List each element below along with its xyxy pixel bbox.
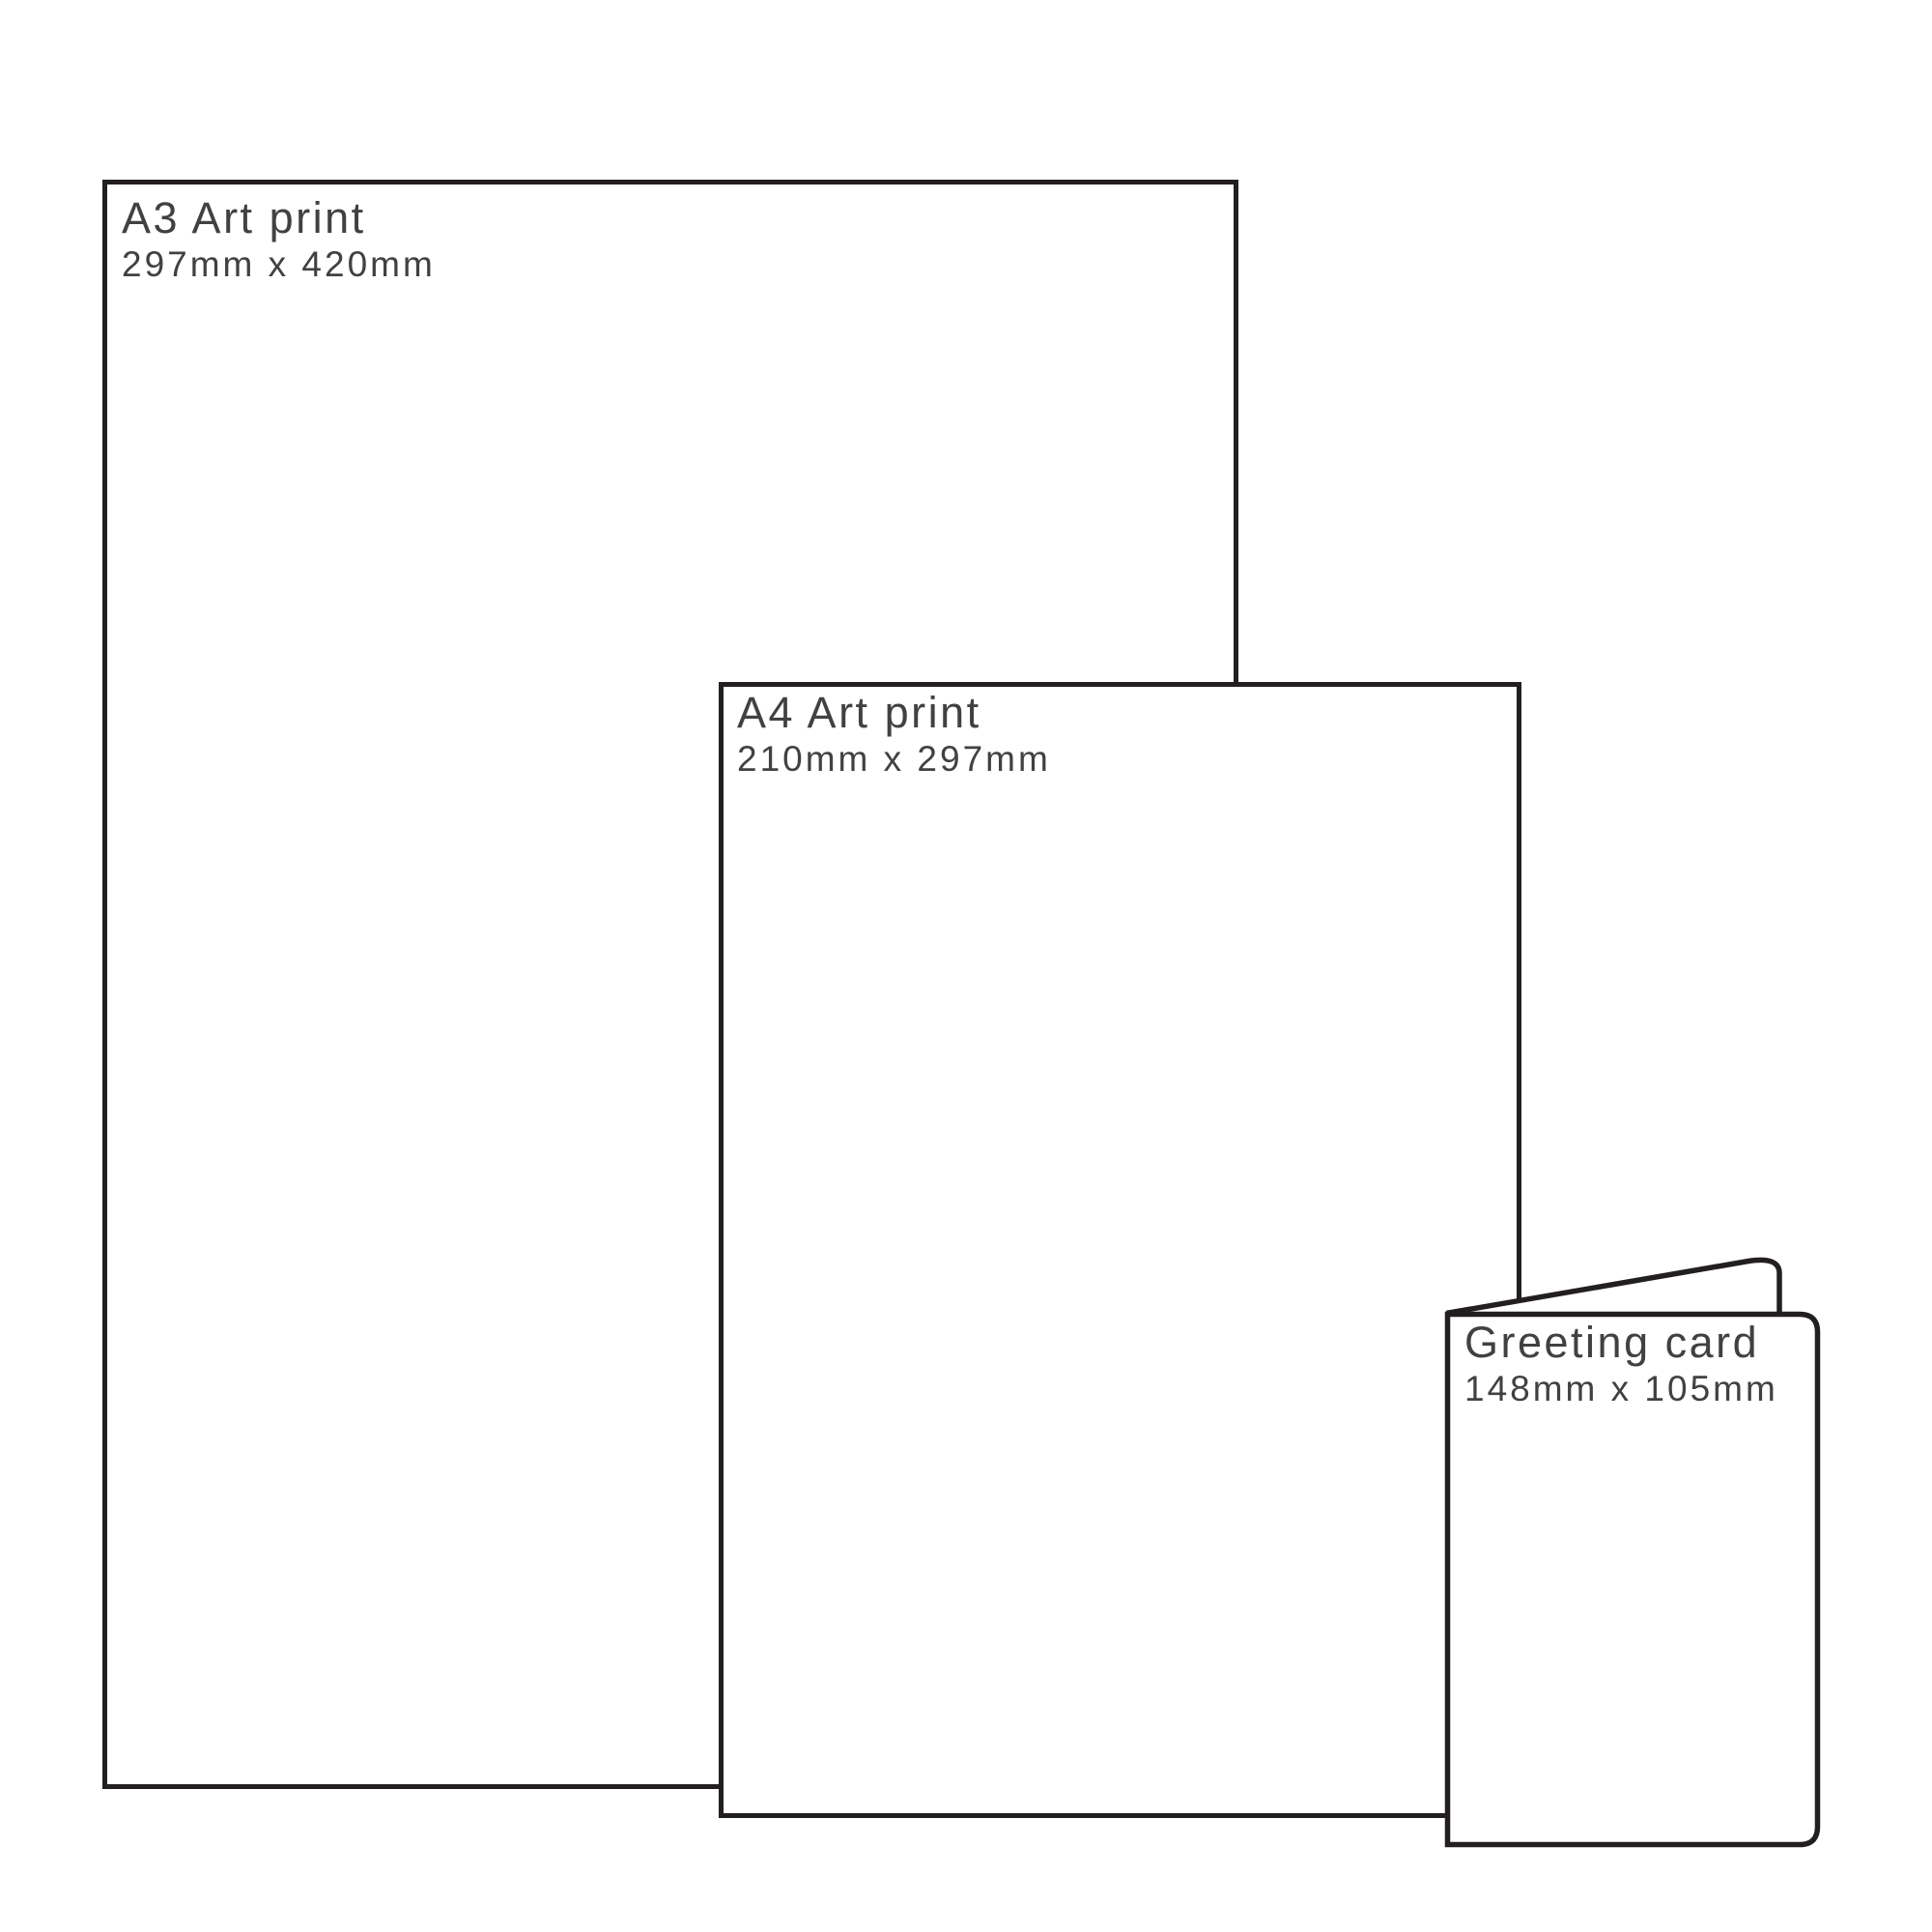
- diagram-shapes: [0, 0, 1932, 1932]
- size-comparison-diagram: A3 Art print 297mm x 420mm A4 Art print …: [0, 0, 1932, 1932]
- a4-print-outline: [722, 685, 1520, 1816]
- greeting-card-front: [1448, 1315, 1818, 1845]
